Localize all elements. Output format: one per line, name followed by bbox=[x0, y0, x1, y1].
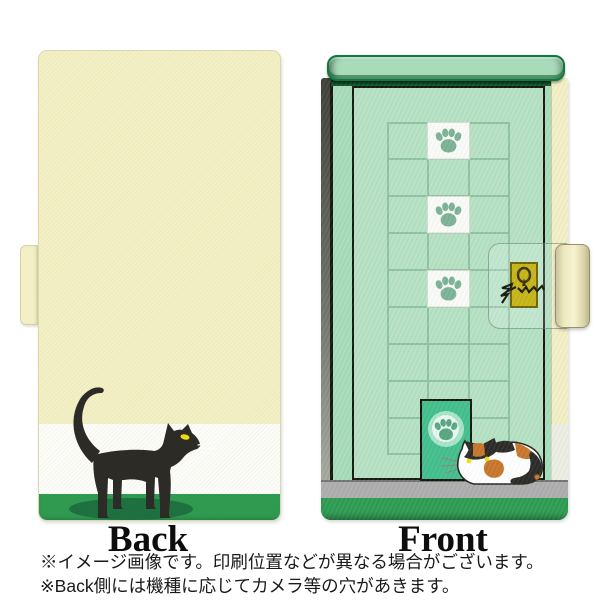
disclaimer-notes: ※イメージ画像です。印刷位置などが異なる場合がございます。 ※Back側には機種… bbox=[40, 551, 596, 598]
closure-strap-tab-back bbox=[20, 245, 39, 325]
black-cat-illustration bbox=[56, 381, 216, 521]
grass-band-front bbox=[321, 498, 568, 520]
case-left-outline bbox=[330, 83, 333, 480]
calico-cat-eye bbox=[467, 459, 472, 464]
scratch-marks-icon bbox=[496, 281, 548, 307]
note-line-1: ※イメージ画像です。印刷位置などが異なる場合がございます。 bbox=[40, 551, 596, 575]
back-panel bbox=[38, 50, 281, 521]
calico-cat-tail-spot bbox=[534, 474, 539, 479]
paw-cells bbox=[428, 123, 470, 308]
closure-strap bbox=[555, 244, 590, 328]
calico-cat-back-patch bbox=[495, 441, 515, 453]
black-cat-whiskers bbox=[198, 442, 216, 455]
door-awning-bar bbox=[327, 55, 565, 81]
front-case bbox=[321, 78, 568, 520]
calico-cat-flank-patch bbox=[484, 460, 504, 478]
note-line-2: ※Back側には機種に応じてカメラ等の穴があきます。 bbox=[40, 575, 596, 599]
black-cat-tail bbox=[73, 387, 103, 463]
calico-cat-illustration bbox=[438, 434, 556, 486]
calico-cat-forehead-patch bbox=[473, 443, 485, 457]
